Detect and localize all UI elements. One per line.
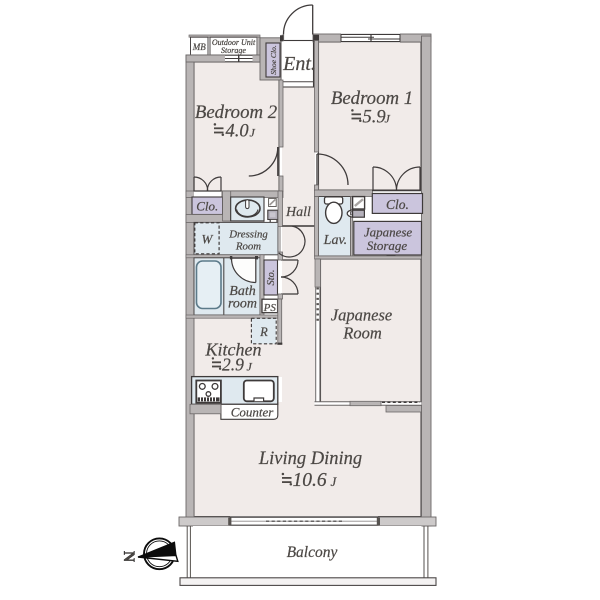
svg-text:R: R — [259, 325, 268, 339]
svg-text:2.9: 2.9 — [222, 355, 244, 375]
svg-text:10.6: 10.6 — [293, 470, 327, 491]
svg-text:Hall: Hall — [285, 205, 311, 220]
svg-text:Room: Room — [342, 324, 382, 343]
svg-text:Room: Room — [235, 241, 261, 253]
svg-text:Shoe Clo.: Shoe Clo. — [269, 45, 278, 75]
svg-text:Lav.: Lav. — [323, 233, 347, 248]
svg-text:MB: MB — [192, 42, 206, 52]
svg-text:5.9: 5.9 — [363, 108, 386, 128]
svg-text:Counter: Counter — [231, 405, 275, 420]
svg-text:Bedroom 1: Bedroom 1 — [331, 88, 413, 109]
svg-text:Storage: Storage — [221, 46, 246, 55]
svg-text:Storage: Storage — [367, 238, 408, 253]
svg-text:Bedroom 2: Bedroom 2 — [195, 102, 277, 123]
svg-text:Ent.: Ent. — [282, 53, 316, 75]
svg-text:Balcony: Balcony — [287, 544, 338, 561]
svg-text:4.0: 4.0 — [226, 122, 250, 142]
svg-text:J: J — [247, 360, 253, 374]
svg-text:J: J — [385, 112, 391, 126]
svg-text:Dressing: Dressing — [228, 229, 268, 241]
svg-text:Japanese: Japanese — [331, 306, 392, 325]
svg-text:Living Dining: Living Dining — [258, 449, 362, 469]
svg-text:W: W — [201, 232, 213, 247]
svg-text:PS: PS — [263, 302, 277, 314]
svg-text:room: room — [228, 297, 257, 312]
svg-text:Clo.: Clo. — [196, 199, 218, 214]
svg-text:Clo.: Clo. — [386, 197, 409, 212]
svg-text:J: J — [250, 126, 256, 140]
svg-text:Sto.: Sto. — [266, 269, 277, 285]
svg-text:N: N — [120, 551, 137, 562]
